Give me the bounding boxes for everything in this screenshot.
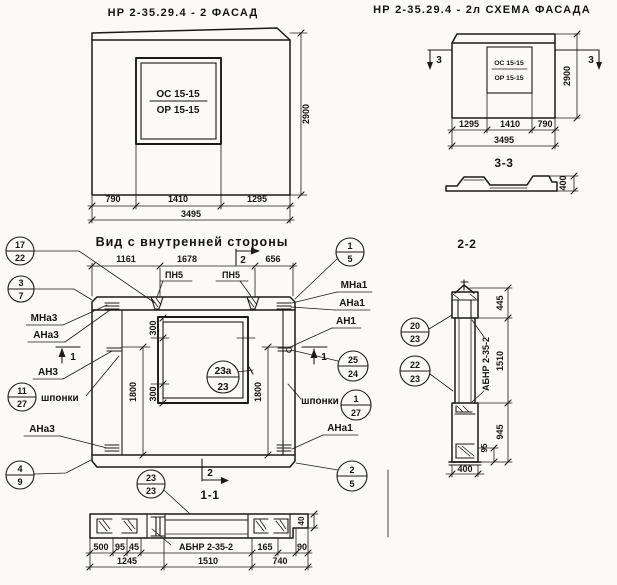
section-1-1-title: 1-1 (200, 488, 219, 502)
svg-text:2: 2 (349, 465, 354, 475)
svg-text:2: 2 (207, 468, 213, 479)
section-3-3-title: 3-3 (494, 156, 513, 170)
section-1-1-dim-1245: 1245 (117, 556, 137, 566)
svg-text:27: 27 (17, 399, 27, 409)
inner-dim-1161: 1161 (116, 254, 136, 264)
key-marks (105, 303, 291, 451)
blueprint-canvas: НР 2-35.29.4 - 2 ФАСАД ОС 15-15 ОР 15-15… (0, 0, 617, 585)
callout-4-9: 4 9 (6, 460, 91, 489)
section-3-3: 3-3 400 (446, 156, 578, 194)
callout-1-27: 1 27 (341, 390, 371, 420)
callout-25-24: 25 24 (287, 348, 369, 382)
schema-dim-1410: 1410 (500, 119, 520, 129)
pn5-connector-right (247, 297, 259, 309)
svg-text:23: 23 (146, 473, 156, 483)
section-3-3-dim-400: 400 (558, 175, 568, 190)
section-2-2: 2-2 АБНР 2-35-2 (400, 237, 512, 477)
label-ana1: АНа1 (339, 298, 365, 309)
svg-text:23: 23 (410, 374, 420, 384)
svg-text:7: 7 (18, 291, 23, 301)
window-dim-300-bottom: 300 (148, 386, 158, 401)
section-1-1: 23 23 1-1 40 (86, 470, 318, 570)
section-2-2-dim-1510: 1510 (495, 351, 505, 371)
section-1-1-dim-500: 500 (93, 542, 108, 552)
callout-22-23: 22 23 (400, 356, 453, 391)
svg-text:22: 22 (15, 253, 25, 263)
pn5-connector-left (151, 297, 163, 309)
facade-dim-height: 2900 (301, 104, 311, 124)
callout-20-23: 20 23 (401, 315, 452, 346)
facade-window-mark-top: ОС 15-15 (156, 89, 200, 100)
svg-text:23: 23 (146, 486, 156, 496)
svg-text:1: 1 (70, 352, 76, 363)
schema-window-mark-top: ОС 15-15 (494, 60, 524, 67)
callout-2-5: 2 5 (296, 461, 367, 491)
section-2-mark-top: 2 (236, 248, 260, 267)
callout-11-27: 11 27 (8, 383, 36, 411)
label-an1: АН1 (336, 316, 356, 327)
section-1-1-dim-165: 165 (257, 542, 272, 552)
section-1-1-dim-40: 40 (297, 516, 306, 525)
label-mna1: МНа1 (341, 280, 368, 291)
schema-dim-height: 2900 (562, 66, 572, 86)
schema-dim-1295: 1295 (459, 119, 479, 129)
facade-view: НР 2-35.29.4 - 2 ФАСАД ОС 15-15 ОР 15-15… (88, 7, 311, 223)
callout-23-23: 23 23 (137, 470, 190, 514)
svg-text:11: 11 (17, 386, 27, 396)
section-2-2-dim-95: 95 (480, 443, 489, 452)
section-1-1-dim-1510: 1510 (198, 556, 218, 566)
label-an3: АН3 (38, 367, 58, 378)
label-mna3: МНа3 (31, 313, 58, 324)
section-2-2-dim-445: 445 (495, 295, 505, 310)
svg-text:23а: 23а (215, 366, 232, 377)
schema-dim-total: 3495 (494, 135, 514, 145)
section-2-2-product-label: АБНР 2-35-2 (481, 337, 491, 391)
section-1-1-dim-90: 90 (297, 542, 307, 552)
svg-text:17: 17 (15, 240, 25, 250)
svg-text:3: 3 (18, 278, 23, 288)
schema-title: НР 2-35.29.4 - 2л СХЕМА ФАСАДА (373, 4, 591, 16)
facade-title: НР 2-35.29.4 - 2 ФАСАД (108, 7, 259, 19)
facade-dim-total: 3495 (181, 209, 201, 219)
inner-view-title: Вид с внутренней стороны (96, 235, 289, 249)
schema-dim-790: 790 (537, 119, 552, 129)
schema-window-mark-bottom: ОР 15-15 (494, 75, 523, 82)
section-1-1-dim-740: 740 (272, 556, 287, 566)
section-2-2-title: 2-2 (457, 237, 476, 251)
svg-text:23: 23 (217, 382, 229, 393)
svg-text:27: 27 (351, 408, 361, 418)
svg-text:24: 24 (348, 369, 358, 379)
facade-dim-1295: 1295 (247, 194, 267, 204)
svg-text:1: 1 (353, 394, 358, 404)
inner-dim-1678: 1678 (177, 254, 197, 264)
facade-window-mark-bottom: ОР 15-15 (157, 105, 200, 116)
section-2-2-dim-945: 945 (495, 424, 505, 439)
inner-view: Вид с внутренней стороны 1161 1678 656 2 (6, 235, 388, 537)
svg-text:2: 2 (240, 255, 246, 266)
section-2-mark-bottom: 2 (202, 459, 229, 484)
svg-text:3: 3 (436, 55, 442, 66)
svg-text:9: 9 (17, 477, 22, 487)
callout-23a-23: 23а 23 (207, 361, 253, 393)
callout-3-7: 3 7 (8, 276, 92, 302)
section-1-mark-left: 1 (56, 347, 80, 363)
svg-text:4: 4 (17, 464, 22, 474)
section-1-1-dim-95: 95 (115, 542, 125, 552)
inner-dim-1800-right: 1800 (253, 382, 263, 402)
svg-text:5: 5 (349, 479, 354, 489)
section-1-1-dim-45: 45 (129, 542, 139, 552)
schema-view: НР 2-35.29.4 - 2л СХЕМА ФАСАДА ОС 15-15 … (373, 4, 602, 149)
svg-text:25: 25 (348, 355, 358, 365)
svg-text:23: 23 (410, 334, 420, 344)
section-1-1-product-label: АБНР 2-35-2 (179, 542, 233, 552)
section-3-mark-left: 3 (427, 50, 452, 70)
inner-dim-656: 656 (265, 254, 280, 264)
svg-text:1: 1 (347, 241, 352, 251)
window-dim-300-top: 300 (148, 320, 158, 335)
label-ana3: АНа3 (33, 330, 59, 341)
svg-text:3: 3 (588, 55, 594, 66)
svg-text:20: 20 (410, 321, 420, 331)
label-shponki-right: шпонки (301, 396, 339, 407)
pn5-label-1: ПН5 (165, 270, 183, 280)
svg-text:5: 5 (347, 254, 352, 264)
label-ana1-bottom: АНа1 (327, 423, 353, 434)
pn5-label-2: ПН5 (222, 270, 240, 280)
section-2-2-dim-400: 400 (457, 464, 472, 474)
label-shponki-left: шпонки (41, 393, 79, 404)
inner-dim-1800-left: 1800 (128, 382, 138, 402)
label-ana3-bottom: АНа3 (29, 424, 55, 435)
facade-dim-1410: 1410 (168, 194, 188, 204)
svg-text:22: 22 (410, 360, 420, 370)
facade-dim-790: 790 (105, 194, 120, 204)
